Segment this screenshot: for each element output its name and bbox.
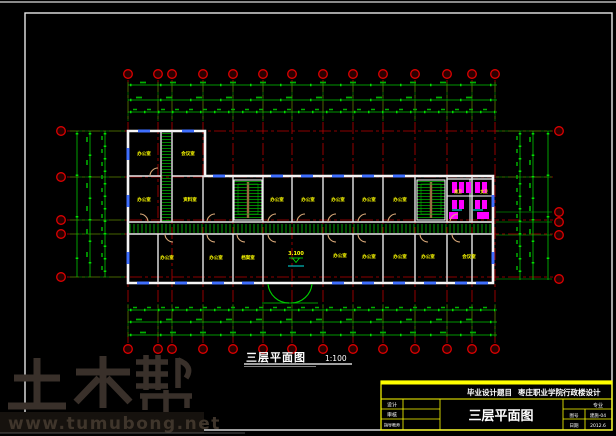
dimension-lines-top xyxy=(128,82,497,121)
room-label: 办公室 xyxy=(421,253,435,260)
room-label: 办公室 xyxy=(331,196,345,203)
watermark-logo-icon xyxy=(8,355,192,412)
plan-caption: 三层平面图 1:100 xyxy=(244,351,352,367)
dimension-lines-bottom xyxy=(128,304,497,337)
cad-drawing-screen[interactable]: 办公室 会议室 办公室 资料室 办公室 办公室 办公室 办公室 办公室 办公室 … xyxy=(0,0,616,436)
dimension-lines-right xyxy=(496,131,552,280)
titleblock-date-value: 2012.6 xyxy=(590,423,606,429)
watermark: www.tumubong.net xyxy=(0,355,245,434)
titleblock-project-name: 枣庄职业学院行政楼设计 xyxy=(517,387,601,397)
titleblock-date-label: 日期 xyxy=(570,423,579,429)
titleblock-row-designer: 设计 xyxy=(387,402,397,409)
room-label: 办公室 xyxy=(393,253,407,260)
staircase-left xyxy=(234,180,262,220)
room-label: 办公室 xyxy=(301,196,315,203)
room-label: 会议室 xyxy=(462,253,476,260)
entrance-doors xyxy=(262,284,318,303)
toilet-label-female: 女卫 xyxy=(480,189,488,194)
caption-title: 三层平面图 xyxy=(246,351,306,364)
room-label: 办公室 xyxy=(137,150,151,157)
dimension-lines-left xyxy=(70,131,125,277)
room-label: 办公室 xyxy=(270,196,284,203)
titleblock-row-checker: 审核 xyxy=(387,412,397,419)
elevation-value: 3.100 xyxy=(288,251,304,257)
watermark-url: www.tumubong.net xyxy=(8,414,221,434)
toilet-fixtures xyxy=(449,182,489,219)
titleblock-sheetno-value: 建施-04 xyxy=(590,412,606,419)
axis-grid-lines xyxy=(67,80,553,343)
room-label: 资料室 xyxy=(183,196,197,203)
room-label: 办公室 xyxy=(393,196,407,203)
toilet-label-male: 男卫 xyxy=(453,189,462,194)
sheet-frame xyxy=(0,2,616,430)
elevation-mark xyxy=(288,258,304,266)
titleblock-project-label: 毕业设计题目 xyxy=(467,387,512,397)
cad-canvas[interactable]: 办公室 会议室 办公室 资料室 办公室 办公室 办公室 办公室 办公室 办公室 … xyxy=(0,0,616,436)
title-block: 毕业设计题目 枣庄职业学院行政楼设计 设计 审核 指导教师 三层平面图 专业 图… xyxy=(381,381,612,430)
room-label: 会议室 xyxy=(181,150,195,157)
room-label: 档案室 xyxy=(241,254,255,261)
room-label: 办公室 xyxy=(137,196,151,203)
titleblock-row-advisor: 指导教师 xyxy=(384,422,400,428)
caption-scale: 1:100 xyxy=(325,354,347,363)
room-label: 办公室 xyxy=(209,254,223,261)
titleblock-major: 专业 xyxy=(593,402,603,409)
titleblock-sheetno-label: 图号 xyxy=(570,413,579,419)
room-label: 办公室 xyxy=(333,252,347,259)
room-label: 办公室 xyxy=(362,253,376,260)
room-label: 办公室 xyxy=(160,254,174,261)
staircase-right xyxy=(417,180,445,220)
room-label: 办公室 xyxy=(362,196,376,203)
titleblock-drawing-name: 三层平面图 xyxy=(468,409,533,424)
